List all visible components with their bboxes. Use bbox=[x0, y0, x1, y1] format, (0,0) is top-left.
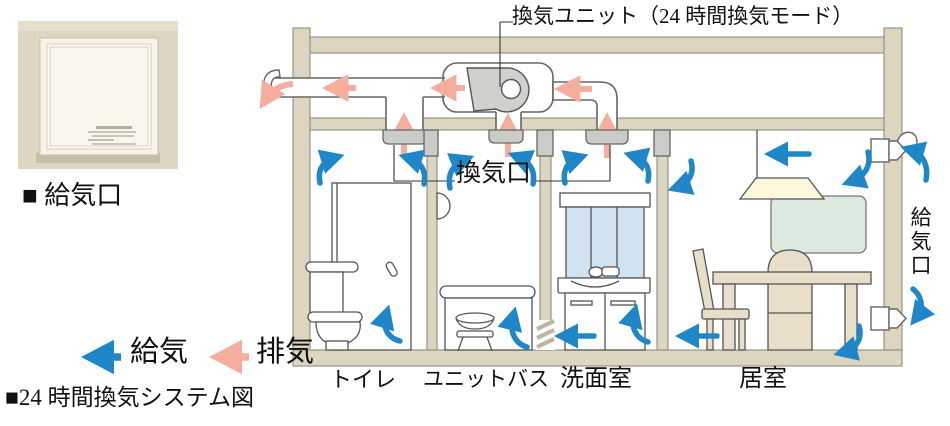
roof-band bbox=[310, 37, 884, 53]
bathtub-rim bbox=[440, 286, 535, 298]
toilet-room bbox=[306, 183, 411, 350]
legend-exhaust-label: 排気 bbox=[256, 337, 314, 367]
door-header-3 bbox=[654, 130, 670, 156]
wall-supply-port-label: 給気口 bbox=[909, 206, 931, 278]
ceiling-vent-label: 換気口 bbox=[456, 161, 531, 187]
outdoor-supply-arrow-top bbox=[911, 150, 927, 180]
room-label-unit-bath: ユニットバス bbox=[423, 368, 549, 390]
chair-back bbox=[768, 250, 812, 350]
room-label-washroom: 洗面室 bbox=[560, 367, 632, 392]
living-room bbox=[693, 130, 871, 350]
floor-band bbox=[293, 350, 902, 366]
ceiling-vent-washroom bbox=[586, 130, 628, 144]
pendant-lamp bbox=[740, 178, 824, 199]
unit-bath-room bbox=[437, 193, 535, 351]
wall-undercut-slits bbox=[536, 320, 555, 350]
table-top bbox=[713, 272, 871, 284]
outdoor-supply-arrow-bottom bbox=[913, 289, 921, 317]
ventilation-system-figure: 換気ユニット（24 時間換気モード） 換気口 給気口 トイレ ユニットバス 洗面… bbox=[0, 0, 950, 426]
vanity-top-bar bbox=[560, 193, 650, 207]
ceiling-vents bbox=[383, 130, 670, 156]
ceiling-vent-bath bbox=[489, 130, 523, 143]
supply-port-bottom bbox=[871, 307, 889, 330]
table-leg bbox=[845, 284, 857, 350]
legend-supply-label: 給気 bbox=[130, 337, 188, 367]
washroom bbox=[558, 193, 650, 350]
room-label-living-room: 居室 bbox=[739, 367, 787, 392]
supply-port-photo bbox=[18, 21, 178, 169]
door-header-1 bbox=[424, 130, 438, 156]
ventilation-fan-icon bbox=[467, 68, 529, 112]
door-header-2 bbox=[537, 130, 553, 156]
figure-title: ■24 時間換気システム図 bbox=[5, 386, 254, 410]
bath-door-handle bbox=[437, 193, 450, 219]
ventilation-unit-label: 換気ユニット（24 時間換気モード） bbox=[512, 5, 853, 27]
wall-panel bbox=[771, 196, 866, 253]
partition-washroom-living bbox=[657, 154, 668, 350]
partition-toilet-bath bbox=[427, 154, 437, 350]
supply-port-top bbox=[871, 139, 889, 162]
chair-left-back bbox=[693, 249, 714, 312]
room-label-toilet: トイレ bbox=[330, 368, 396, 391]
ceiling-vent-toilet bbox=[383, 130, 427, 144]
faucet bbox=[589, 267, 603, 277]
photo-caption: ■ 給気口 bbox=[22, 182, 122, 209]
dining-set bbox=[693, 249, 871, 350]
